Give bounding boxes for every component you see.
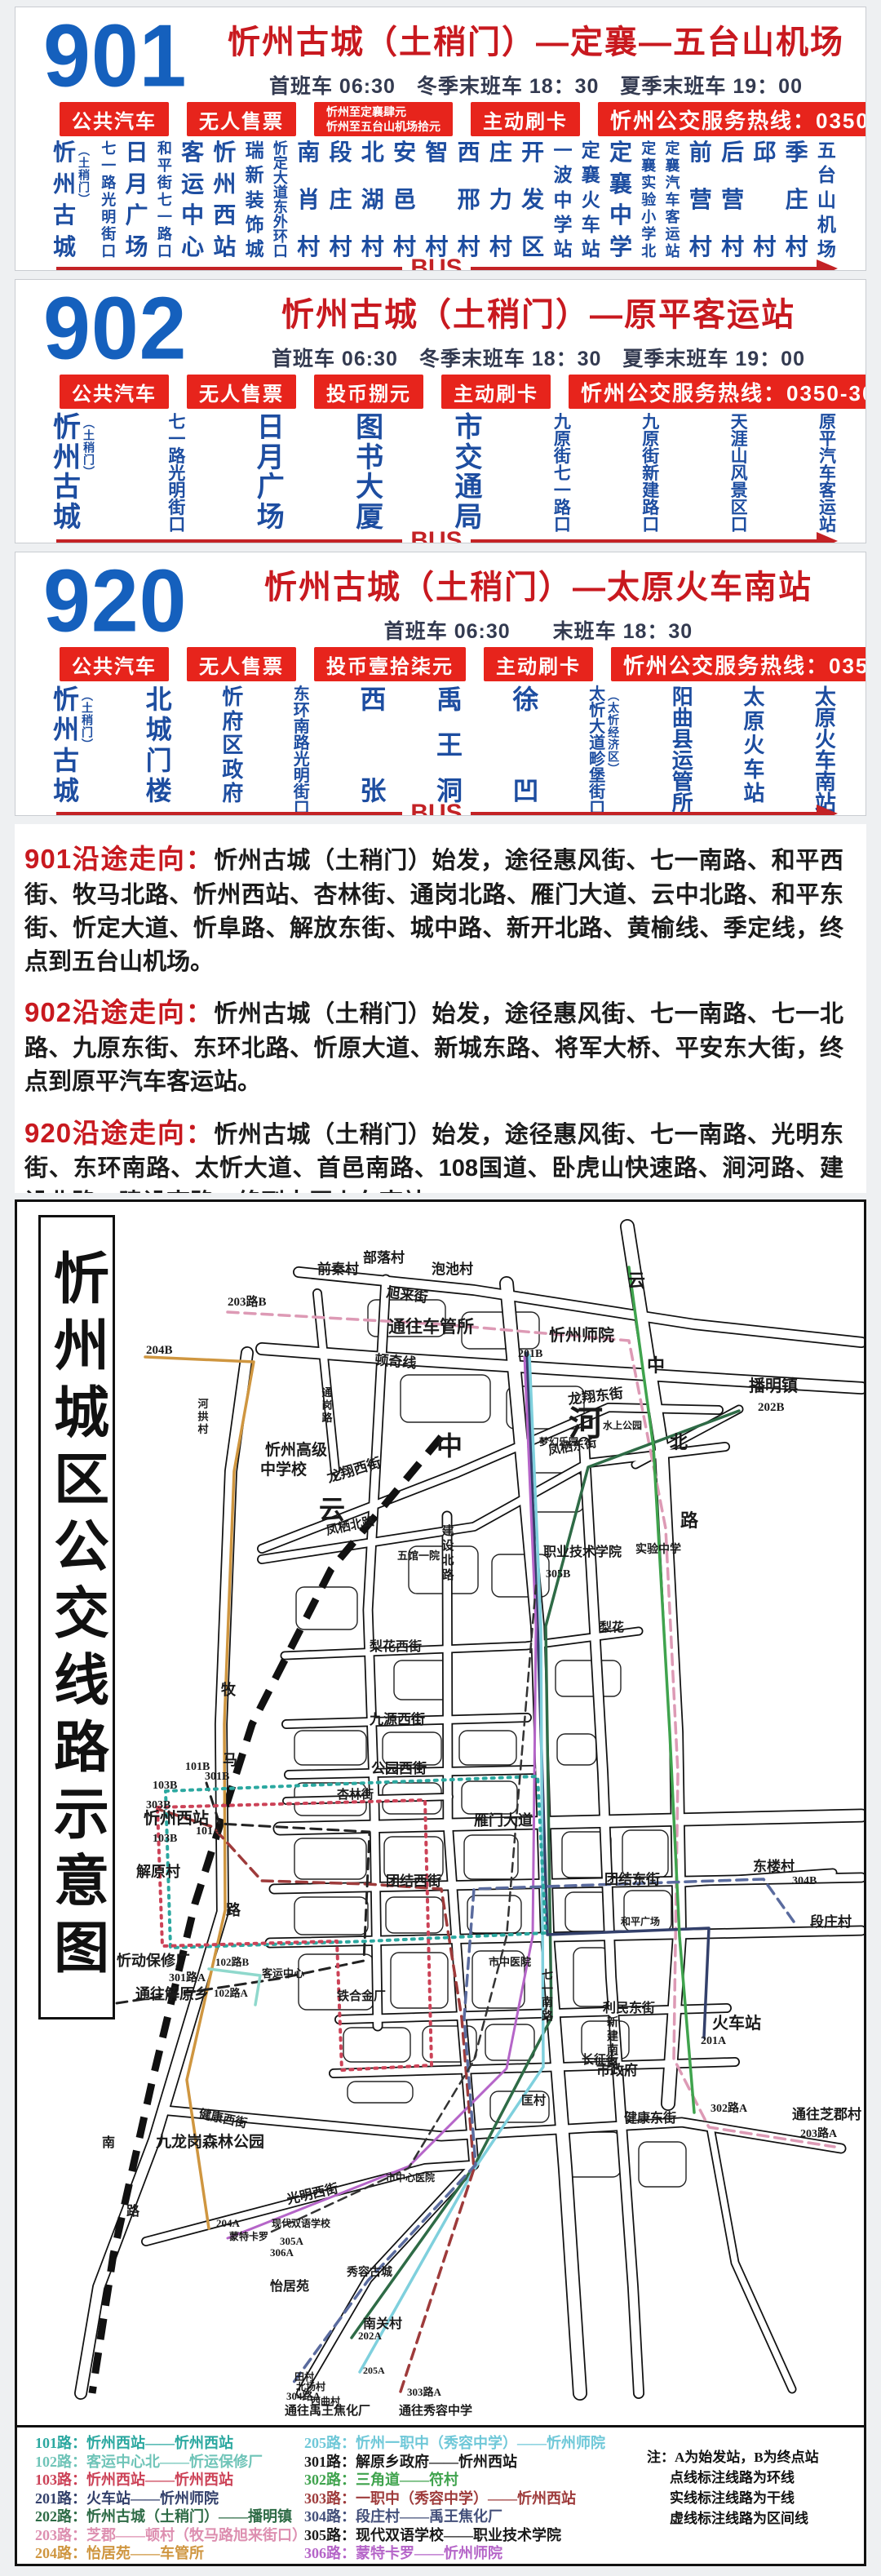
stop-char: 襄 — [582, 166, 600, 184]
stop-char: 汽 — [819, 448, 836, 465]
stop-column: 安邑村 — [393, 141, 416, 259]
stop-char: 段 — [329, 141, 352, 164]
stop-char: 运 — [666, 227, 680, 242]
map-label: 通往车管所 — [388, 1317, 474, 1337]
stop-char: 运 — [672, 750, 693, 771]
route-badge: 忻州至定襄肆元忻州至五台山机场拾元 — [314, 102, 453, 136]
legend-entry: 305路：现代双语学校——职业技术学院 — [304, 2526, 647, 2545]
stop-char: 汽 — [666, 175, 680, 190]
stop-char: 忻 — [213, 141, 236, 164]
stop-name: 开发区 — [521, 141, 544, 259]
stop-column: 开发区 — [521, 141, 544, 259]
stop-column: 客运中心 — [181, 141, 204, 259]
map-label: 匡村 — [521, 2093, 546, 2108]
legend-entry: 203路：芝郡——顿村（牧马路旭来街口） — [35, 2526, 304, 2545]
stop-name: 定襄汽车客运站 — [666, 141, 680, 259]
map-label: 云 — [319, 1495, 345, 1524]
stop-char: 村 — [786, 236, 808, 259]
stop-char: 光 — [294, 752, 310, 768]
stop-column: 西张 — [360, 686, 386, 804]
stop-char: 古 — [53, 747, 79, 774]
route-badge: 公共汽车 — [60, 375, 169, 409]
stops-row: 忻州古城（土稍门）七一路光明街口日月广场图书大厦市交通局九原街七一路口九原街新建… — [15, 414, 866, 531]
map-label: 303B — [146, 1799, 170, 1811]
stop-name: 忻州古城 — [53, 686, 79, 804]
bus-line-right — [471, 267, 817, 270]
stop-char: 区 — [521, 236, 544, 259]
stop-char: 管 — [672, 771, 693, 792]
legend-entry: 103路：忻州西站——忻州西站 — [35, 2471, 304, 2490]
stop-char: 大 — [589, 719, 605, 735]
legend-entry: 301路：解原乡政府——忻州西站 — [304, 2453, 647, 2472]
stop-name: 北城门楼 — [146, 686, 172, 804]
route-badges: 公共汽车无人售票投币捌元主动刷卡忻州公交服务热线：0350-3068568 — [15, 373, 866, 409]
stop-column: 一波中学站 — [553, 141, 572, 259]
badge-text: 公共汽车 — [72, 378, 157, 406]
stop-name: 季庄村 — [786, 141, 808, 259]
stop-char: 北 — [641, 244, 656, 259]
map-label: 前秦村 — [317, 1261, 359, 1277]
bus-arrow-icon — [817, 532, 838, 543]
stop-char: 光 — [168, 465, 185, 482]
legend-note-line: 实线标注线路为干线 — [647, 2488, 852, 2508]
stop-column: 前营村 — [689, 141, 712, 259]
stop-char: 学 — [609, 236, 632, 259]
stop-name: 九原街七一路口 — [554, 414, 571, 531]
map-label: 中学校 — [260, 1460, 308, 1479]
stop-char: 车 — [819, 465, 836, 482]
stop-char: 瑞 — [246, 141, 264, 160]
route-badges: 公共汽车无人售票投币壹拾柒元主动刷卡忻州公交服务热线：0350-3068568 — [15, 645, 866, 681]
stop-char: 运 — [181, 173, 204, 196]
map-label: 建 — [607, 2029, 618, 2043]
map-label: 通往芝郡村 — [792, 2106, 861, 2122]
road — [280, 1816, 861, 1829]
stop-char: 县 — [672, 729, 693, 750]
stop-char: 西 — [213, 204, 236, 227]
stop-char: 庄 — [489, 141, 512, 164]
bus-arrow-icon — [817, 259, 838, 271]
map-label: 段庄村 — [810, 1913, 852, 1930]
bus-label: BUS — [402, 259, 470, 271]
stop-char: 邱 — [753, 141, 776, 164]
stop-char: 路 — [642, 499, 659, 517]
city-block — [343, 2028, 410, 2062]
legend-column-1: 101路：忻州西站——忻州西站102路：客运中心北——忻运保修厂103路：忻州西… — [35, 2434, 304, 2564]
legend-note-line: 虚线标注线路为区间线 — [647, 2508, 852, 2529]
stop-char: 一 — [168, 431, 185, 448]
stop-char: 中 — [553, 191, 572, 210]
route-descriptions: 901沿途走向：忻州古城（土稍门）始发，途径惠风街、七一南路、和平西街、牧马北路… — [15, 824, 866, 1193]
badge-text: 公共汽车 — [72, 650, 157, 679]
legend-entry: 201路：火车站——忻州师院 — [35, 2490, 304, 2508]
map-label: 203路A — [800, 2126, 838, 2140]
legend-note-line: 注：A为始发站，B为终点站 — [647, 2447, 852, 2467]
map-label: 和平广场 — [620, 1915, 660, 1927]
map-label: 健康西街 — [197, 2106, 248, 2130]
stop-column: 五台山机场 — [817, 141, 836, 259]
stop-char: 客 — [819, 482, 836, 499]
city-block — [557, 1734, 596, 1765]
map-label: 市政府 — [596, 2062, 638, 2078]
stop-char: 禹 — [436, 686, 463, 712]
badge-text: 忻州至五台山机场拾元 — [326, 119, 440, 134]
map-label: 通 — [321, 1386, 332, 1399]
stop-char: 阳 — [672, 686, 693, 707]
legend-entry: 302路：三角道——符村 — [304, 2471, 647, 2490]
map-label: 新 — [607, 2015, 618, 2029]
stop-char: 和 — [157, 141, 172, 156]
stop-char: 力 — [489, 188, 512, 211]
badge-text: 忻州至定襄肆元 — [326, 104, 440, 119]
stop-char: 装 — [246, 191, 264, 210]
map-label: 301B — [205, 1771, 229, 1783]
map-label: 302路A — [711, 2101, 748, 2115]
stop-column: 禹王洞 — [436, 686, 463, 804]
stop-char: 学 — [553, 215, 572, 234]
map-label: 中 — [647, 1355, 665, 1376]
stop-name: 图书大厦 — [356, 414, 383, 531]
map-label: 301路A — [169, 1971, 206, 1984]
route-badge: 忻州公交服务热线：0350-3068568 — [611, 647, 866, 681]
city-block — [565, 2132, 621, 2177]
stop-name: 徐凹 — [513, 686, 539, 804]
badge-text: 主动刷卡 — [483, 105, 568, 134]
stop-column: 季庄村 — [786, 141, 808, 259]
stop-char: 州 — [53, 173, 76, 196]
stop-char: 张 — [360, 778, 386, 804]
stop-char: 王 — [436, 732, 463, 758]
map-label: 解原村 — [136, 1863, 180, 1880]
stop-char: 后 — [721, 141, 744, 164]
stop-name: 九原街新建路口 — [642, 414, 659, 531]
stop-column: 段庄村 — [329, 141, 352, 259]
stop-char: 站 — [553, 240, 572, 259]
route-number: 901 — [43, 12, 228, 102]
stop-char: 村 — [721, 236, 744, 259]
stop-char: 所 — [672, 792, 693, 814]
map-label: 水上公园 — [603, 1419, 642, 1431]
stop-name: 原平汽车客运站 — [819, 414, 836, 531]
map-label: 职业技术学院 — [543, 1544, 622, 1559]
stop-name: 邱村 — [753, 141, 776, 259]
legend-entry: 204路：怡居苑——车管所 — [35, 2544, 304, 2563]
stops-row: 忻州古城（土稍门）北城门楼忻府区政府东环南路光明街口西张禹王洞徐凹太忻大道畛堡街… — [15, 686, 866, 804]
map-label: 北 — [670, 1432, 688, 1452]
stop-column: 日月广场 — [126, 141, 148, 259]
road-casing — [711, 2128, 792, 2389]
stop-char: 道 — [589, 735, 605, 752]
map-label: 北 — [441, 1554, 454, 1567]
stop-char: 忻 — [53, 686, 79, 712]
route-badges: 公共汽车无人售票忻州至定襄肆元忻州至五台山机场拾元主动刷卡忻州公交服务热线：03… — [15, 100, 866, 136]
map-label: 梨花西街 — [369, 1638, 422, 1654]
stop-char: 街 — [294, 784, 310, 800]
map-label: 团结东街 — [604, 1871, 660, 1887]
stop-char: 日 — [257, 414, 285, 441]
stop-char: 门 — [146, 747, 172, 774]
map-label: 路 — [542, 2009, 554, 2023]
stop-char: 南 — [815, 771, 836, 792]
stop-name: 一波中学站 — [553, 141, 572, 259]
map-label: 204B — [146, 1344, 173, 1357]
stop-name: 五台山机场 — [817, 141, 836, 259]
map-label: 利民东街 — [603, 2000, 655, 2015]
stop-char: 新 — [642, 465, 659, 482]
stop-char: 明 — [168, 482, 185, 499]
stop-char: 古 — [53, 473, 81, 501]
map-label: 忻州高级 — [265, 1440, 327, 1459]
stop-char: 场 — [126, 236, 148, 259]
stop-char: 府 — [222, 783, 243, 804]
stop-char: 景 — [731, 482, 748, 499]
stop-column: 定襄火车站 — [582, 141, 600, 259]
stop-column: 阳曲县运管所 — [672, 686, 693, 804]
stop-char: 村 — [689, 236, 712, 259]
stop-name: 段庄村 — [329, 141, 352, 259]
map-label: 201A — [701, 2035, 727, 2047]
map-label: 通往禹王焦化厂 — [285, 2403, 370, 2418]
route-badge: 公共汽车 — [60, 102, 169, 136]
map-label: 播明镇 — [749, 1376, 798, 1395]
map-title: 忻州城区公交线路示意图 — [38, 1215, 115, 2020]
stop-char: 中 — [609, 204, 632, 227]
map-label: 路 — [126, 2203, 140, 2219]
stop-char: 日 — [126, 141, 148, 164]
stop-char: 街 — [554, 448, 571, 465]
road — [711, 2128, 792, 2389]
stop-char: 西 — [360, 686, 386, 712]
map-label: 102路B — [215, 1956, 250, 1968]
legend-entry: 205路：忻州一职中（秀容中学）——忻州师院 — [304, 2434, 647, 2453]
city-block — [573, 1948, 609, 2006]
map-label: 202A — [358, 2330, 383, 2342]
route-badge: 主动刷卡 — [471, 102, 580, 136]
stop-char: 城 — [53, 778, 79, 804]
map-label: 305A — [280, 2235, 304, 2247]
map-label: 雁门大道 — [474, 1811, 533, 1829]
stop-char: 市 — [455, 414, 483, 441]
stop-char: 州 — [53, 716, 79, 743]
stop-subname: （太忻经济区） — [605, 689, 622, 775]
stop-char: 火 — [743, 734, 764, 756]
stop-char: 开 — [521, 141, 544, 164]
map-label: 部落村 — [363, 1249, 405, 1266]
stop-name: 忻府区政府 — [222, 686, 243, 804]
map-label: 公园西街 — [371, 1760, 427, 1776]
stop-column: 邱村 — [753, 141, 776, 259]
route-description: 901沿途走向：忻州古城（土稍门）始发，途径惠风街、七一南路、和平西街、牧马北路… — [24, 840, 843, 979]
stop-char: 忻 — [53, 414, 81, 441]
stop-char: 口 — [554, 517, 571, 534]
stop-char: 小 — [641, 210, 656, 224]
stop-char: 城 — [53, 503, 81, 531]
stop-char: 营 — [721, 188, 744, 211]
stop-column: 九原街七一路口 — [554, 414, 571, 531]
stop-char: 忻 — [222, 686, 243, 707]
stop-name: 忻州古城 — [53, 414, 81, 531]
stop-column: 定襄中学 — [609, 141, 632, 259]
stop-char: 徐 — [513, 686, 539, 712]
stop-char: 太 — [815, 686, 836, 707]
stop-char: 中 — [181, 204, 204, 227]
badge-text: 无人售票 — [199, 378, 284, 406]
stop-char: 路 — [157, 227, 172, 242]
stop-char: 城 — [53, 236, 76, 259]
stop-char: 邢 — [458, 188, 480, 211]
description-label: 902沿途走向： — [24, 997, 214, 1027]
stop-char: 路 — [101, 175, 116, 190]
route-title: 忻州古城（土稍门）—太原火车南站 — [264, 561, 812, 608]
route-number: 902 — [43, 285, 232, 375]
map-label: 泡池村 — [432, 1261, 473, 1277]
map-label: 梦幻乐园 — [539, 1435, 578, 1448]
city-block — [462, 1781, 517, 1814]
stop-char: 站 — [743, 783, 764, 804]
stop-char: 定 — [641, 141, 656, 156]
stop-char: 机 — [817, 215, 836, 234]
stop-char: 车 — [666, 193, 680, 207]
route-badge: 忻州公交服务热线：0350-3068568 — [598, 102, 866, 136]
stop-char: 站 — [213, 236, 236, 259]
stop-char: 古 — [53, 204, 76, 227]
map-label: 河 — [197, 1398, 208, 1410]
map-label: 201B — [518, 1348, 542, 1360]
stop-char: 七 — [101, 141, 116, 156]
stop-char: 府 — [222, 711, 243, 732]
map-label: 中 — [436, 1431, 463, 1461]
stop-name: 客运中心 — [181, 141, 204, 259]
city-block — [459, 1731, 516, 1765]
stop-char: 原 — [819, 414, 836, 431]
stop-char: 原 — [642, 431, 659, 448]
map-label: 忻动保修厂 — [117, 1952, 190, 1969]
city-block — [294, 1731, 366, 1765]
city-block — [348, 2082, 413, 2103]
stop-column: 日月广场 — [257, 414, 285, 531]
stop-char: 山 — [817, 191, 836, 210]
bus-line: BUS — [56, 259, 838, 271]
stop-char: 口 — [273, 244, 288, 259]
stop-char: 心 — [181, 236, 204, 259]
map-label: 一 — [542, 1984, 553, 1996]
map-label: 202B — [758, 1401, 785, 1414]
stop-char: 月 — [257, 444, 285, 472]
stop-char: 平 — [157, 158, 172, 173]
stop-char: 原 — [815, 707, 836, 729]
map-label: 火车站 — [712, 2013, 761, 2033]
stop-column: 徐凹 — [513, 686, 539, 804]
stop-char: 山 — [731, 448, 748, 465]
stop-char: 村 — [753, 236, 776, 259]
stop-char: 新 — [246, 166, 264, 184]
stop-name: 北湖村 — [361, 141, 384, 259]
map-label: 拱 — [197, 1411, 208, 1423]
legend-entry: 304路：段庄村——禹王焦化厂 — [304, 2507, 647, 2526]
stop-char: 饰 — [246, 215, 264, 234]
stop-name: 忻州古城 — [53, 141, 76, 259]
stop-char: 区 — [731, 499, 748, 517]
stop-char: 火 — [815, 729, 836, 750]
stop-char: 庄 — [786, 188, 808, 211]
stop-char: 一 — [553, 141, 572, 160]
stop-char: 州 — [53, 444, 81, 472]
city-block — [467, 1895, 521, 1933]
stop-char: 学 — [641, 227, 656, 242]
stop-char: 口 — [157, 244, 172, 259]
stop-char: 北 — [361, 141, 384, 164]
stop-char: 定 — [582, 141, 600, 160]
stop-name: 定襄实验小学北 — [641, 141, 656, 259]
stop-char: 忻 — [273, 141, 288, 156]
stop-column: 九原街新建路口 — [642, 414, 659, 531]
map-label: 304B — [792, 1875, 817, 1887]
stop-char: 街 — [101, 227, 116, 242]
stop-name: 和平街七一路口 — [157, 141, 172, 259]
stop-char: 街 — [642, 448, 659, 465]
stop-char: 外 — [273, 215, 288, 229]
stop-char: 书 — [356, 444, 383, 472]
city-block — [622, 1830, 668, 1878]
stop-char: 一 — [101, 158, 116, 173]
stop-char: 场 — [257, 503, 285, 531]
stop-char: 忻 — [53, 141, 76, 164]
map-label: 南 — [542, 1996, 553, 2010]
map-label: 忻州师院 — [549, 1325, 614, 1345]
legend-column-2: 205路：忻州一职中（秀容中学）——忻州师院301路：解原乡政府——忻州西站30… — [304, 2434, 647, 2564]
stop-name: 日月广场 — [257, 414, 285, 531]
map-label: 304路A — [286, 2390, 321, 2402]
stop-char: 月 — [126, 173, 148, 196]
stop-column: 天涯山风景区口 — [731, 414, 748, 531]
stop-char: 九 — [554, 414, 571, 431]
map-label: 马 — [223, 1752, 237, 1768]
stop-char: 道 — [273, 185, 288, 200]
stop-column: 忻州古城（土稍门） — [53, 141, 92, 259]
bus-line-left — [56, 267, 402, 270]
stop-name: 太忻大道畛堡街口 — [589, 686, 605, 804]
stop-char: 通 — [455, 473, 483, 501]
route-badge: 无人售票 — [187, 102, 296, 136]
stop-subname: （土稍门） — [76, 144, 92, 206]
map-label: 现代双语学校 — [272, 2217, 331, 2229]
stop-name: 南肖村 — [297, 141, 320, 259]
stop-name: 市交通局 — [455, 414, 483, 531]
stop-name: 太原火车站 — [743, 686, 764, 804]
route-header-right: 忻州古城（土稍门）—太原火车南站首班车 06:30 末班车 18：30 — [232, 559, 844, 645]
map-label: 南 — [102, 2135, 115, 2150]
stop-name: 天涯山风景区口 — [731, 414, 748, 531]
stop-column: 后营村 — [721, 141, 744, 259]
stop-char: 定 — [273, 156, 288, 171]
stop-name: 智村 — [425, 141, 448, 259]
map-label: 路 — [321, 1412, 333, 1424]
stop-char: 街 — [168, 499, 185, 517]
map-label: 建 — [441, 1523, 454, 1538]
stop-char: 凹 — [513, 778, 539, 804]
stop-char: 北 — [146, 686, 172, 712]
route-schedule: 首班车 06:30 末班车 18：30 — [384, 615, 693, 645]
map-label: 梨花 — [599, 1620, 624, 1634]
stop-char: 太 — [589, 686, 605, 703]
stop-name: 日月广场 — [126, 141, 148, 259]
city-block — [386, 1897, 443, 1933]
badge-text: 投币捌元 — [326, 378, 411, 406]
stop-char: 一 — [157, 210, 172, 224]
stop-char: 村 — [361, 236, 384, 259]
bus-line-right — [471, 539, 817, 543]
legend-note: 注：A为始发站，B为终点站点线标注线路为环线实线标注线路为干线虚线标注线路为区间… — [647, 2434, 852, 2564]
